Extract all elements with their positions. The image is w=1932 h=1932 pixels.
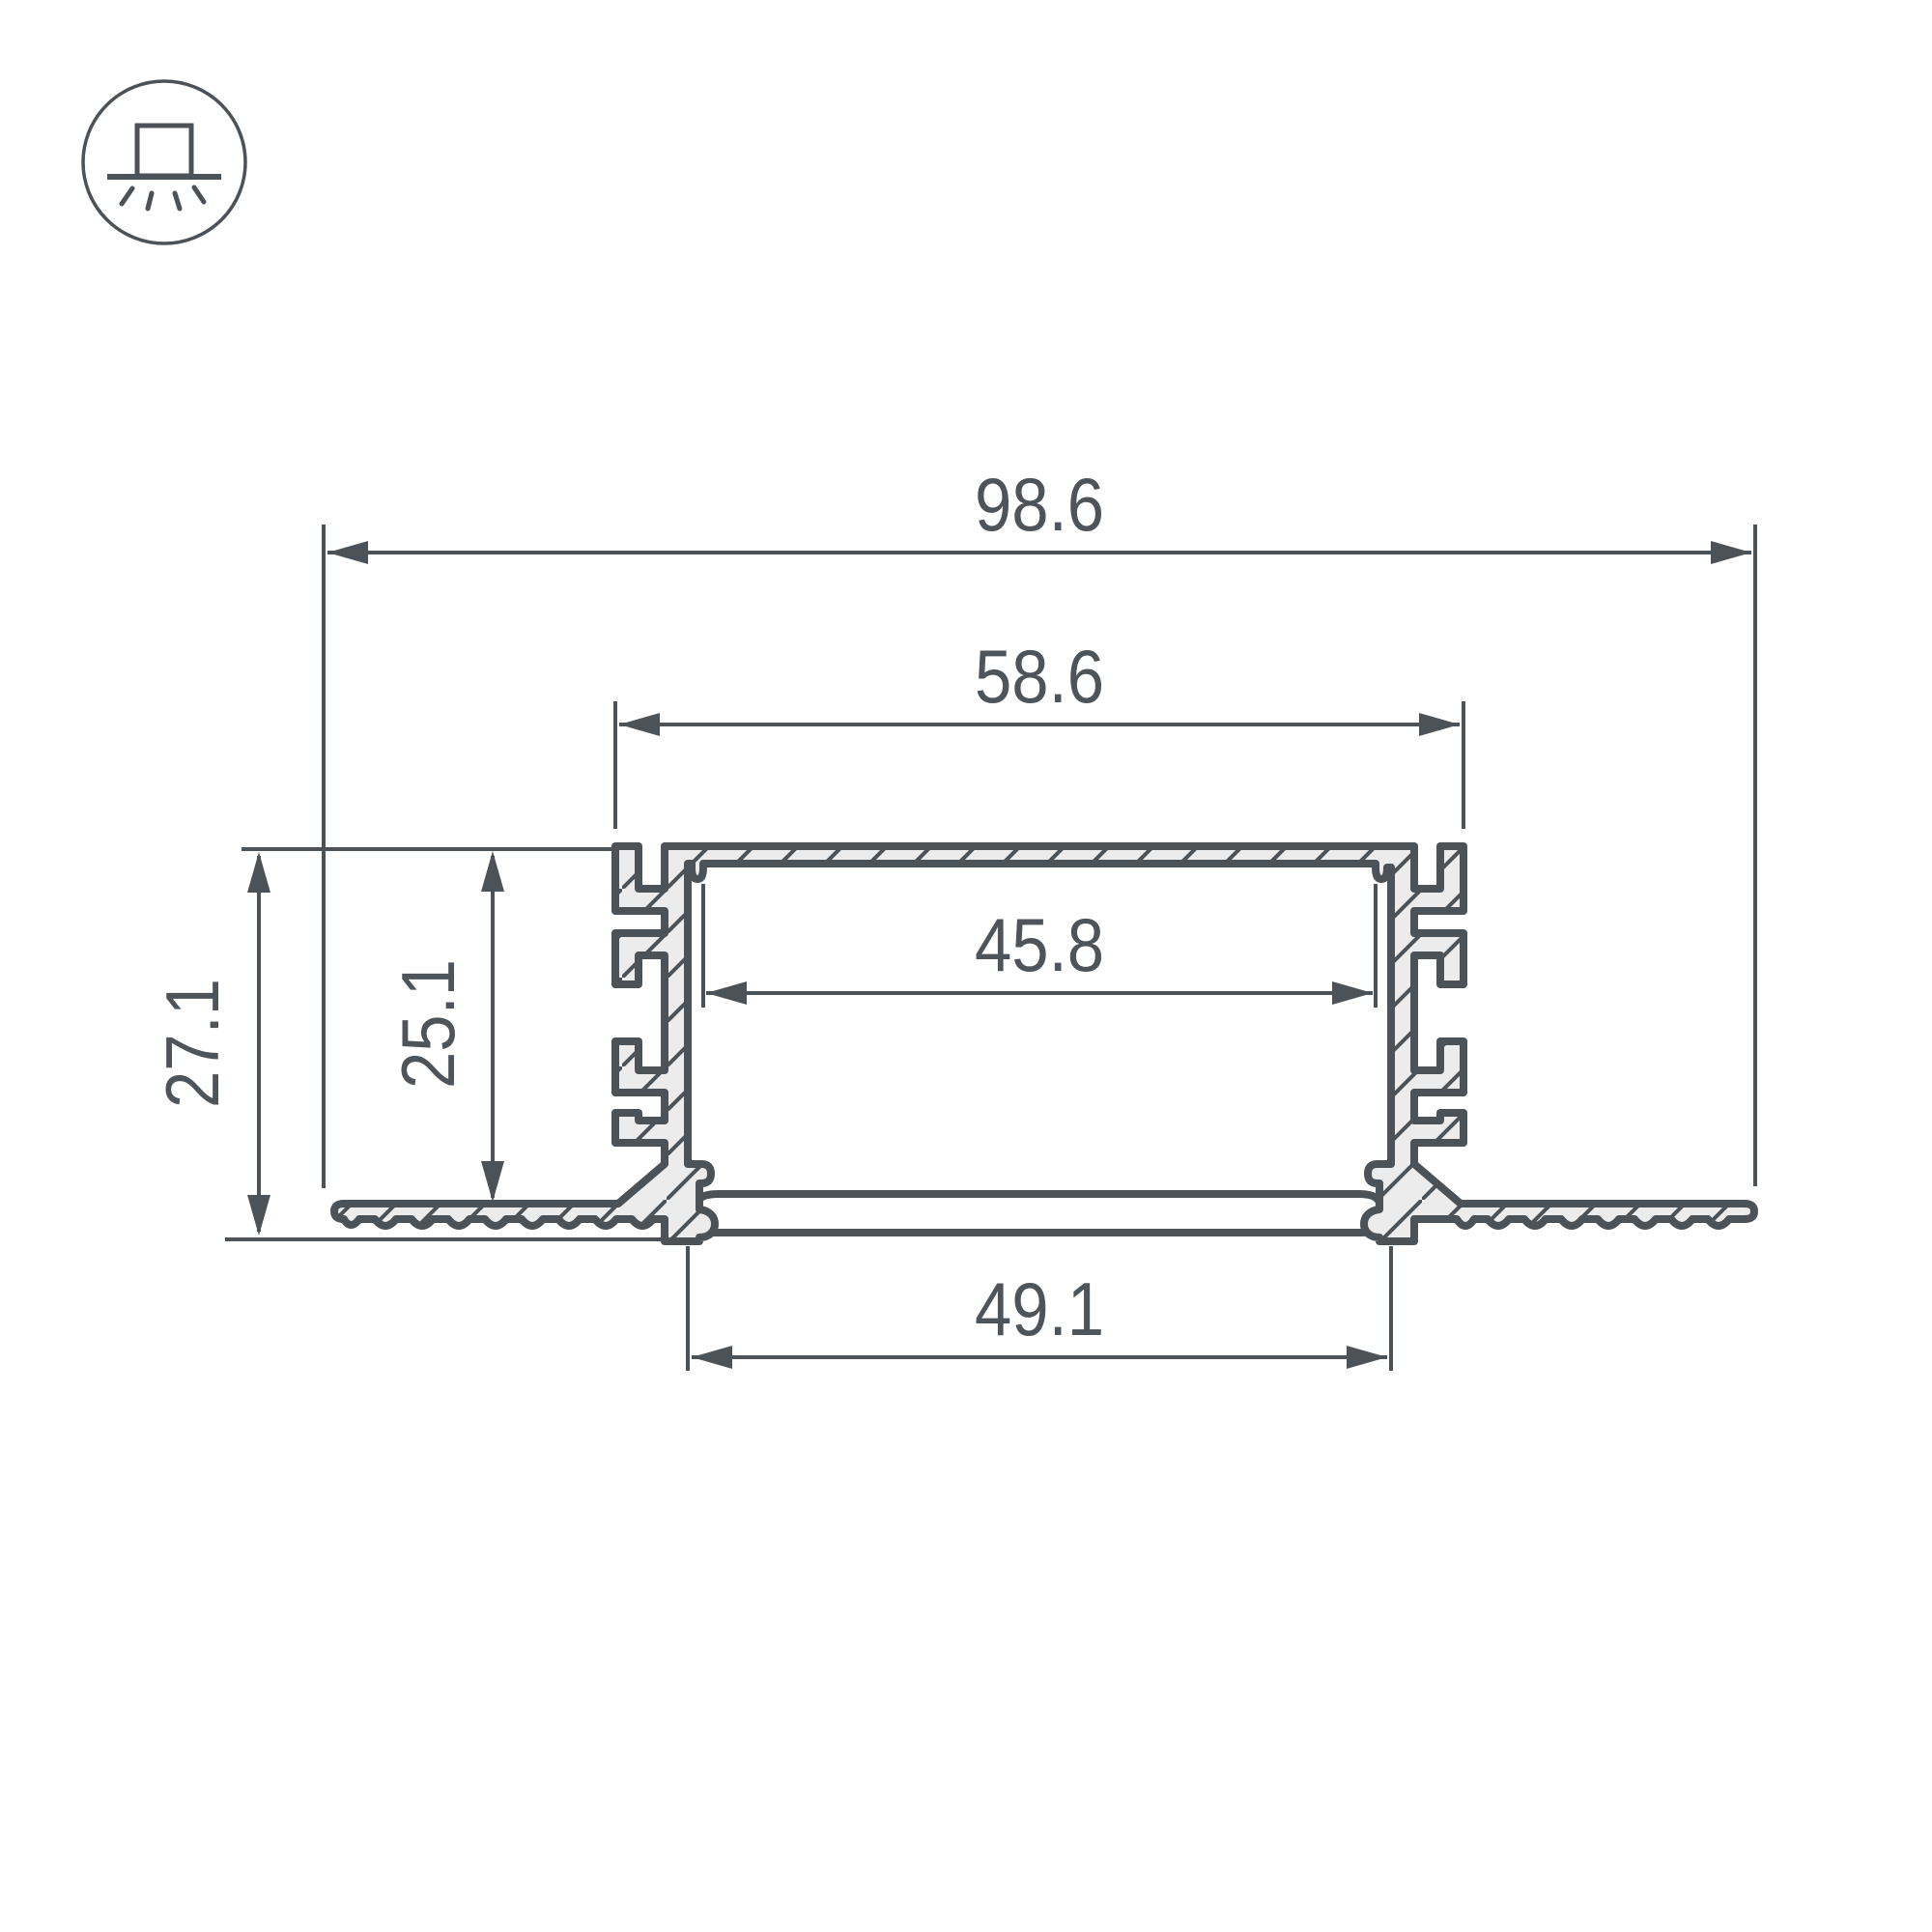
arrowhead-left <box>619 713 660 736</box>
icon-light-rays <box>122 187 204 209</box>
arrowhead-right <box>1419 713 1460 736</box>
dim-diffuser-width-label: 49.1 <box>975 1266 1104 1351</box>
arrowhead-right <box>1711 541 1751 564</box>
dim-channel-outer-width: 58.6 <box>615 634 1463 829</box>
dim-inner-width: 45.8 <box>703 884 1376 1008</box>
dim-channel-depth-label: 25.1 <box>385 959 470 1089</box>
profile-dimension-drawing: 98.6 58.6 45.8 49.1 <box>0 0 1932 1932</box>
arrowhead-right <box>1347 1346 1387 1369</box>
dim-channel-depth: 25.1 <box>385 851 504 1202</box>
dim-overall-height-label: 27.1 <box>150 979 235 1108</box>
dim-channel-outer-width-label: 58.6 <box>975 634 1104 719</box>
arrowhead-down <box>481 1161 504 1202</box>
arrowhead-up <box>481 851 504 892</box>
dim-inner-width-label: 45.8 <box>975 902 1104 987</box>
arrowhead-up <box>247 852 270 893</box>
diffuser-plate <box>697 1194 1379 1233</box>
recessed-mount-light-icon <box>83 81 245 243</box>
arrowhead-left <box>706 981 747 1005</box>
dim-overall-width: 98.6 <box>324 462 1755 1188</box>
arrowhead-down <box>247 1195 270 1236</box>
arrowhead-left <box>327 541 368 564</box>
dim-overall-width-label: 98.6 <box>975 462 1104 547</box>
arrowhead-right <box>1332 981 1373 1005</box>
arrowhead-left <box>692 1346 732 1369</box>
dim-diffuser-width: 49.1 <box>688 1246 1391 1371</box>
icon-fixture-box <box>137 126 191 176</box>
